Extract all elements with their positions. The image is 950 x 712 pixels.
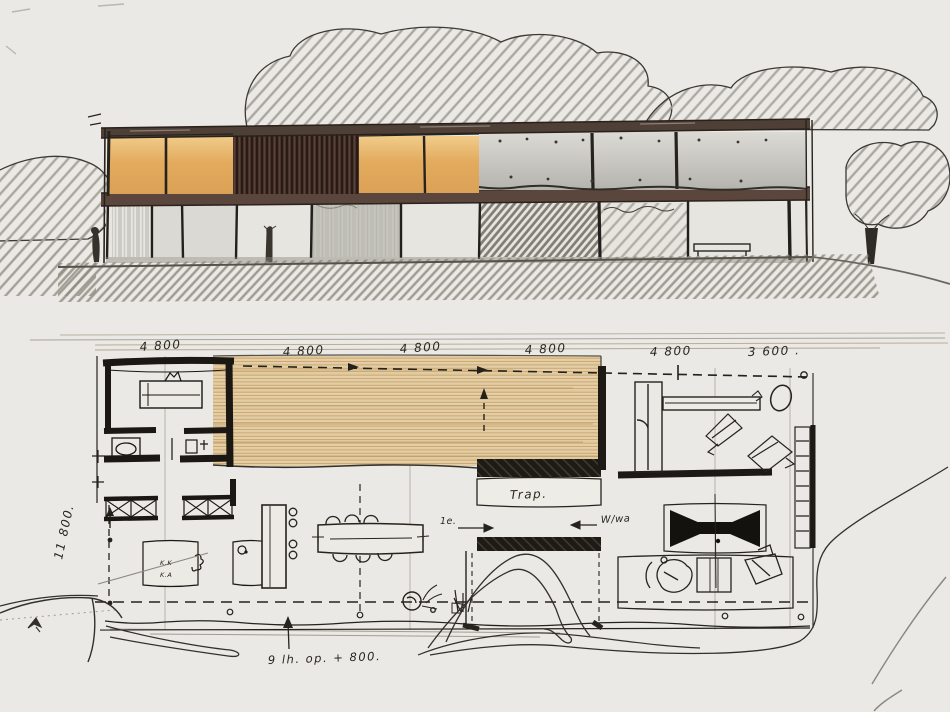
glass-panel [154,203,237,257]
deck-top-edge [213,355,601,356]
egg-chair [767,383,794,414]
inner-wall-line [108,370,226,372]
utility-label: W/wa [601,513,631,526]
stair-core: Trap. 1e. W/wa [440,459,631,629]
glazed-panel-right [479,132,807,190]
glass-reflection-dark [480,203,598,257]
pencil-curve-right-1 [872,577,946,684]
chairs-top [326,515,378,524]
timber-slat-panel [233,129,359,194]
glass-reflection-mid [599,203,689,257]
tree-canopy-far-right [846,142,950,229]
lamp-scribble [165,372,181,381]
bottom-wavy-line [105,621,810,628]
kitchen-dining [262,484,472,616]
up-arrow [283,616,293,628]
orange-panel-mid [359,136,479,193]
dim-bay-5: 4 800 [650,344,692,359]
glass-streaks [310,203,402,257]
level-label: 1e. [440,516,456,527]
bar-stools [289,508,297,559]
glass-reflection-left [112,203,154,257]
wardrobe-closets [104,497,234,519]
kitchen-island [262,505,286,588]
faint-guide [0,610,115,620]
room-code-1: K.K [160,559,172,567]
potted-plant [403,585,442,612]
bottom-boundary [100,628,810,630]
paper-smudges [6,4,124,54]
elevation-drawing [0,4,950,302]
dim-tick-crosses [92,450,105,488]
building-lower-floor [91,199,810,262]
pencil-curve-right-2 [874,690,902,711]
terrain-curves [0,467,948,711]
sketch-page: 4 800 4 800 4 800 4 800 4 800 3 600 . 11… [0,0,950,712]
plant-leaves [422,585,442,609]
dim-bay-6: 3 600 . [748,343,801,359]
site-loop-curve [106,626,239,656]
living-block [602,366,813,610]
dim-bay-3: 4 800 [399,339,442,356]
stair-wall-bottom [477,537,601,551]
north-arrow-scribble [28,618,41,632]
lounge-chair-scribbles [706,414,794,472]
floor-plan: 4 800 4 800 4 800 4 800 4 800 3 600 . 11… [0,333,948,711]
tree-canopy-center [245,27,671,131]
bed-sketch [140,372,202,408]
room-code-2: K.A [160,571,172,579]
dim-bay-1: 4 800 [139,337,182,354]
side-table [697,558,731,592]
stair-wall-top [477,459,601,477]
dim-left-vertical: 11 800. [51,503,76,561]
orange-panel-left [107,136,233,194]
architectural-sketch: 4 800 4 800 4 800 4 800 4 800 3 600 . 11… [0,0,950,712]
lounge-area [618,545,793,610]
shelving-ladder [795,425,813,548]
site-curve-left-2 [88,598,95,662]
direction-arrows [458,521,597,532]
round-chair [657,560,692,593]
breezeway-walls [463,551,602,629]
bottom-annotation: 9 lh. op. + 800. [268,616,382,667]
dim-bay-4: 4 800 [524,341,567,357]
chair-back-arc [646,562,652,588]
dining-table [312,515,429,562]
stairs-label: Trap. [510,487,548,502]
bottom-note-label: 9 lh. op. + 800. [268,649,382,667]
study-room-sketch [143,541,203,587]
bed-sofa [663,391,762,410]
wood-deck [213,355,601,468]
wardrobe-tall [635,382,662,472]
